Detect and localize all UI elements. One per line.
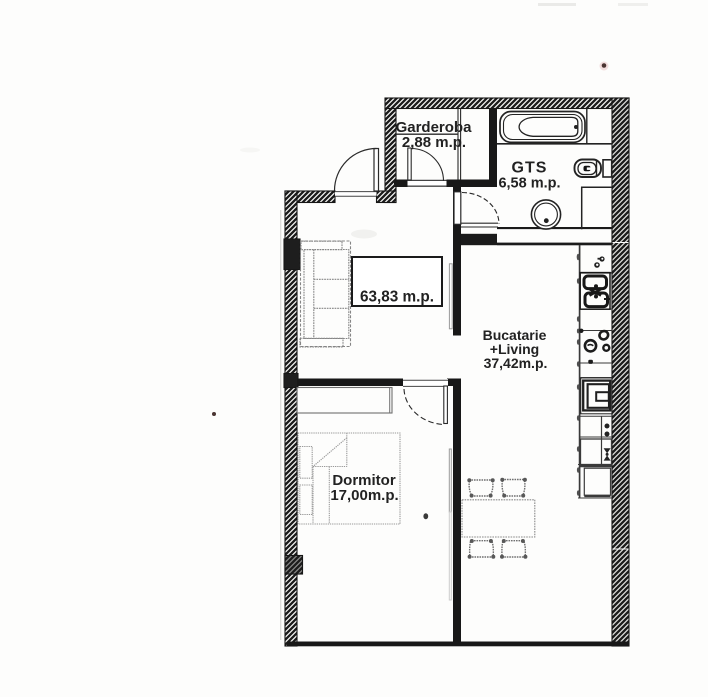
svg-text:17,00m.p.: 17,00m.p. xyxy=(330,487,398,504)
svg-text:6,58 m.p.: 6,58 m.p. xyxy=(498,176,560,192)
svg-text:63,83 m.p.: 63,83 m.p. xyxy=(360,289,434,306)
svg-text:GTS: GTS xyxy=(512,160,548,177)
svg-text:37,42m.p.: 37,42m.p. xyxy=(484,355,548,371)
svg-text:2,88 m.p.: 2,88 m.p. xyxy=(402,134,466,151)
